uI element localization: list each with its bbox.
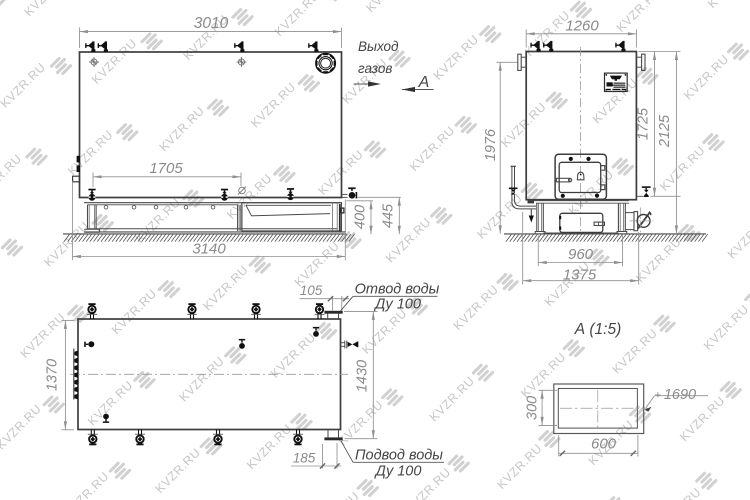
svg-text:2125: 2125 xyxy=(657,114,673,148)
svg-text:Подвод воды: Подвод воды xyxy=(355,448,443,464)
svg-text:1260: 1260 xyxy=(565,18,599,35)
svg-text:1725: 1725 xyxy=(636,107,652,140)
svg-text:А (1:5): А (1:5) xyxy=(574,321,622,338)
svg-text:960: 960 xyxy=(568,246,594,263)
svg-text:300: 300 xyxy=(525,396,541,420)
svg-text:1370: 1370 xyxy=(45,359,61,391)
svg-text:105: 105 xyxy=(300,283,323,298)
svg-text:1705: 1705 xyxy=(149,160,183,177)
svg-text:445: 445 xyxy=(381,203,397,228)
svg-text:1690: 1690 xyxy=(664,387,696,403)
svg-text:185: 185 xyxy=(293,451,316,466)
svg-text:1375: 1375 xyxy=(563,267,597,284)
svg-text:Выход: Выход xyxy=(358,39,399,54)
svg-text:А: А xyxy=(418,74,430,91)
svg-text:3010: 3010 xyxy=(194,15,229,32)
svg-text:Ду 100: Ду 100 xyxy=(373,297,421,313)
svg-text:газов: газов xyxy=(358,61,392,76)
svg-text:600: 600 xyxy=(591,436,617,453)
svg-text:400: 400 xyxy=(353,205,369,229)
svg-text:1430: 1430 xyxy=(355,360,371,392)
svg-text:+: + xyxy=(655,390,662,402)
svg-text:3140: 3140 xyxy=(192,241,226,258)
svg-text:1976: 1976 xyxy=(483,128,499,161)
svg-text:Отвод воды: Отвод воды xyxy=(355,282,440,298)
svg-text:Ду 100: Ду 100 xyxy=(374,464,422,480)
